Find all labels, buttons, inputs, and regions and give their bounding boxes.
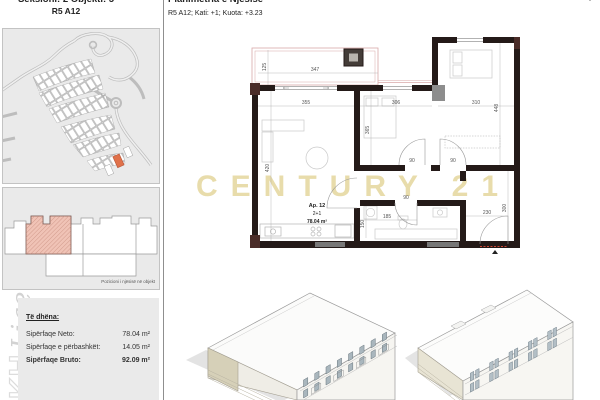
dim-door-c: 90	[403, 195, 409, 201]
dim-living-h: 420	[265, 164, 271, 173]
dim-balcony-w: 347	[311, 67, 320, 73]
sidebar-header: Seksioni: 2 Objekti: 5 R5 A12	[0, 0, 132, 16]
dim-bedroom2-h: 448	[494, 104, 500, 113]
unit-area: 78.04 m²	[307, 219, 327, 225]
site-map	[2, 28, 160, 184]
sidebar-divider	[163, 0, 164, 400]
unit-data-panel: Të dhëna: Sipërfaqe Neto: 78.04 m² Sipër…	[18, 298, 159, 400]
dim-living-w: 355	[302, 100, 311, 106]
section-object-label: Seksioni: 2 Objekti: 5	[0, 0, 132, 5]
elevation-caption: Pozicioni i njësisë në objekt	[101, 279, 155, 284]
shaft	[344, 49, 363, 66]
balcony-outline	[252, 48, 432, 85]
dim-bedroom1-h: 365	[365, 126, 371, 135]
kitchen-counter	[260, 224, 354, 238]
building-elevation: Pozicioni i njësisë në objekt	[2, 187, 160, 290]
dim-bedroom2-w: 310	[472, 100, 481, 106]
unit-code-label: R5 A12	[0, 6, 132, 16]
data-row-neto: Sipërfaqe Neto: 78.04 m²	[18, 331, 159, 338]
highlighted-unit	[26, 216, 71, 254]
floor-plan: 347 125 355 420 306 365 310 448 185 150 …	[165, 28, 600, 260]
data-row-perbashket: Sipërfaqe e përbashkët: 14.05 m²	[18, 344, 159, 351]
unit-rooms: 2+1	[313, 211, 322, 217]
page-subtitle: R5 A12; Kati: +1; Kuota: +3.23	[168, 10, 263, 17]
unit-label: Ap. 12 2+1 78.04 m²	[307, 203, 327, 225]
site-map-drawing	[3, 29, 159, 183]
dim-entry-w: 230	[483, 210, 492, 216]
dim-bath-h: 150	[360, 220, 366, 229]
dim-entry-h: 300	[502, 204, 508, 213]
dim-door-b: 90	[450, 158, 456, 164]
page-title: Planimetria e Njësisë	[168, 0, 263, 5]
unit-name: Ap. 12	[309, 203, 326, 209]
dim-bedroom1-w: 306	[392, 100, 401, 106]
data-panel-title: Të dhëna:	[18, 298, 159, 321]
north-arrow-icon	[576, 0, 600, 14]
elevation-drawing: Pozicioni i njësisë në objekt	[3, 188, 159, 289]
data-row-bruto: Sipërfaqe Bruto: 92.09 m²	[18, 357, 159, 364]
roundabout	[111, 98, 121, 108]
axon-view-right	[395, 278, 600, 400]
axon-view-left	[180, 288, 395, 400]
plot-grid	[33, 59, 125, 171]
dimension-lines	[258, 43, 514, 241]
dim-bath-w: 185	[383, 214, 392, 220]
dim-balcony-h: 125	[262, 63, 268, 72]
dim-door-a: 90	[409, 158, 415, 164]
